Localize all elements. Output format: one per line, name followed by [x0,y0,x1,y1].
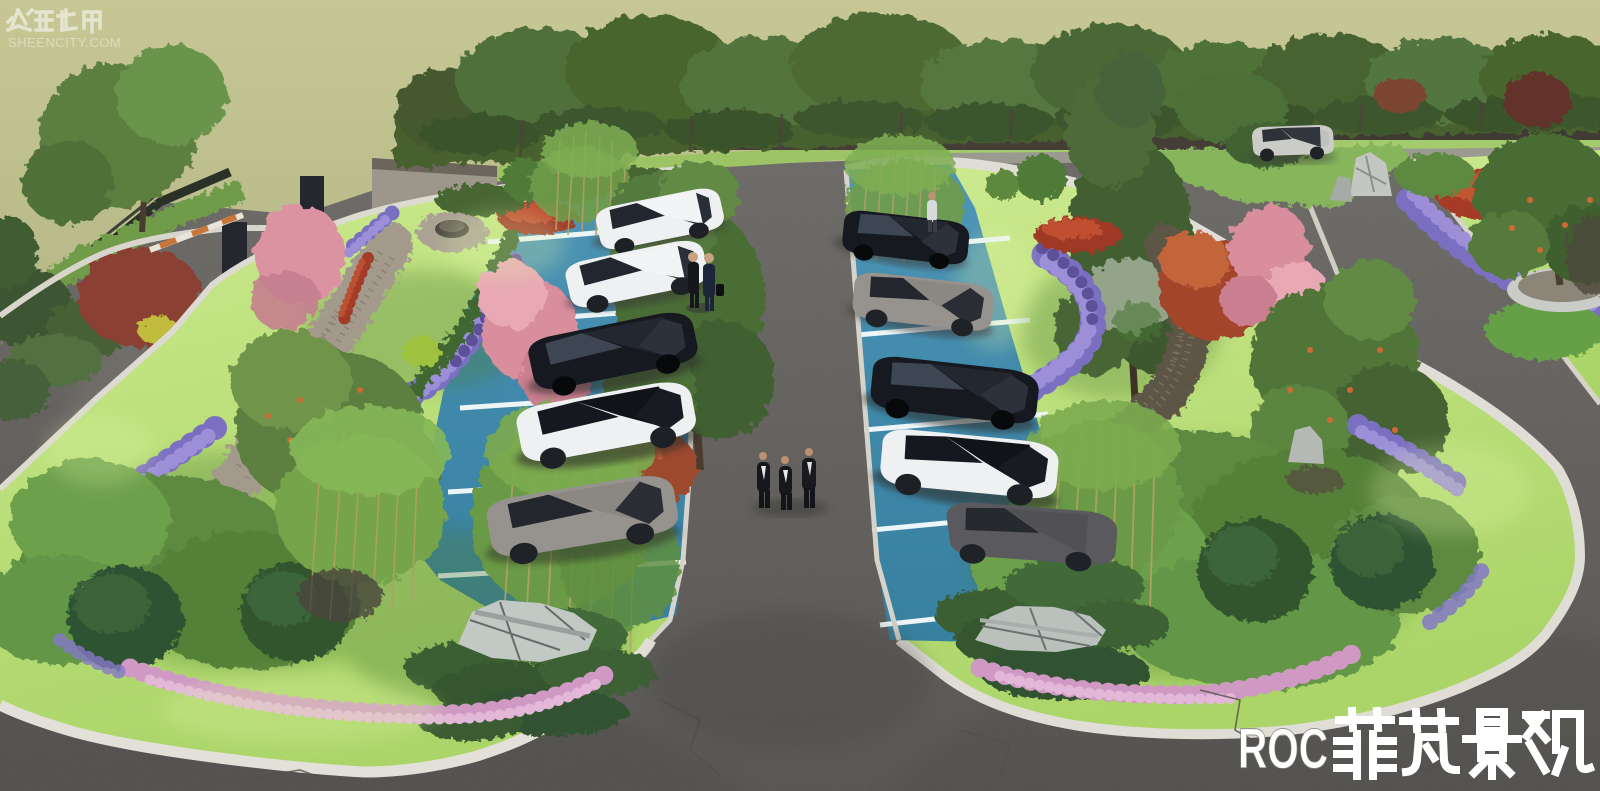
svg-text:ROC: ROC [1238,717,1328,781]
svg-text:SHEENCITY.COM: SHEENCITY.COM [8,35,121,50]
